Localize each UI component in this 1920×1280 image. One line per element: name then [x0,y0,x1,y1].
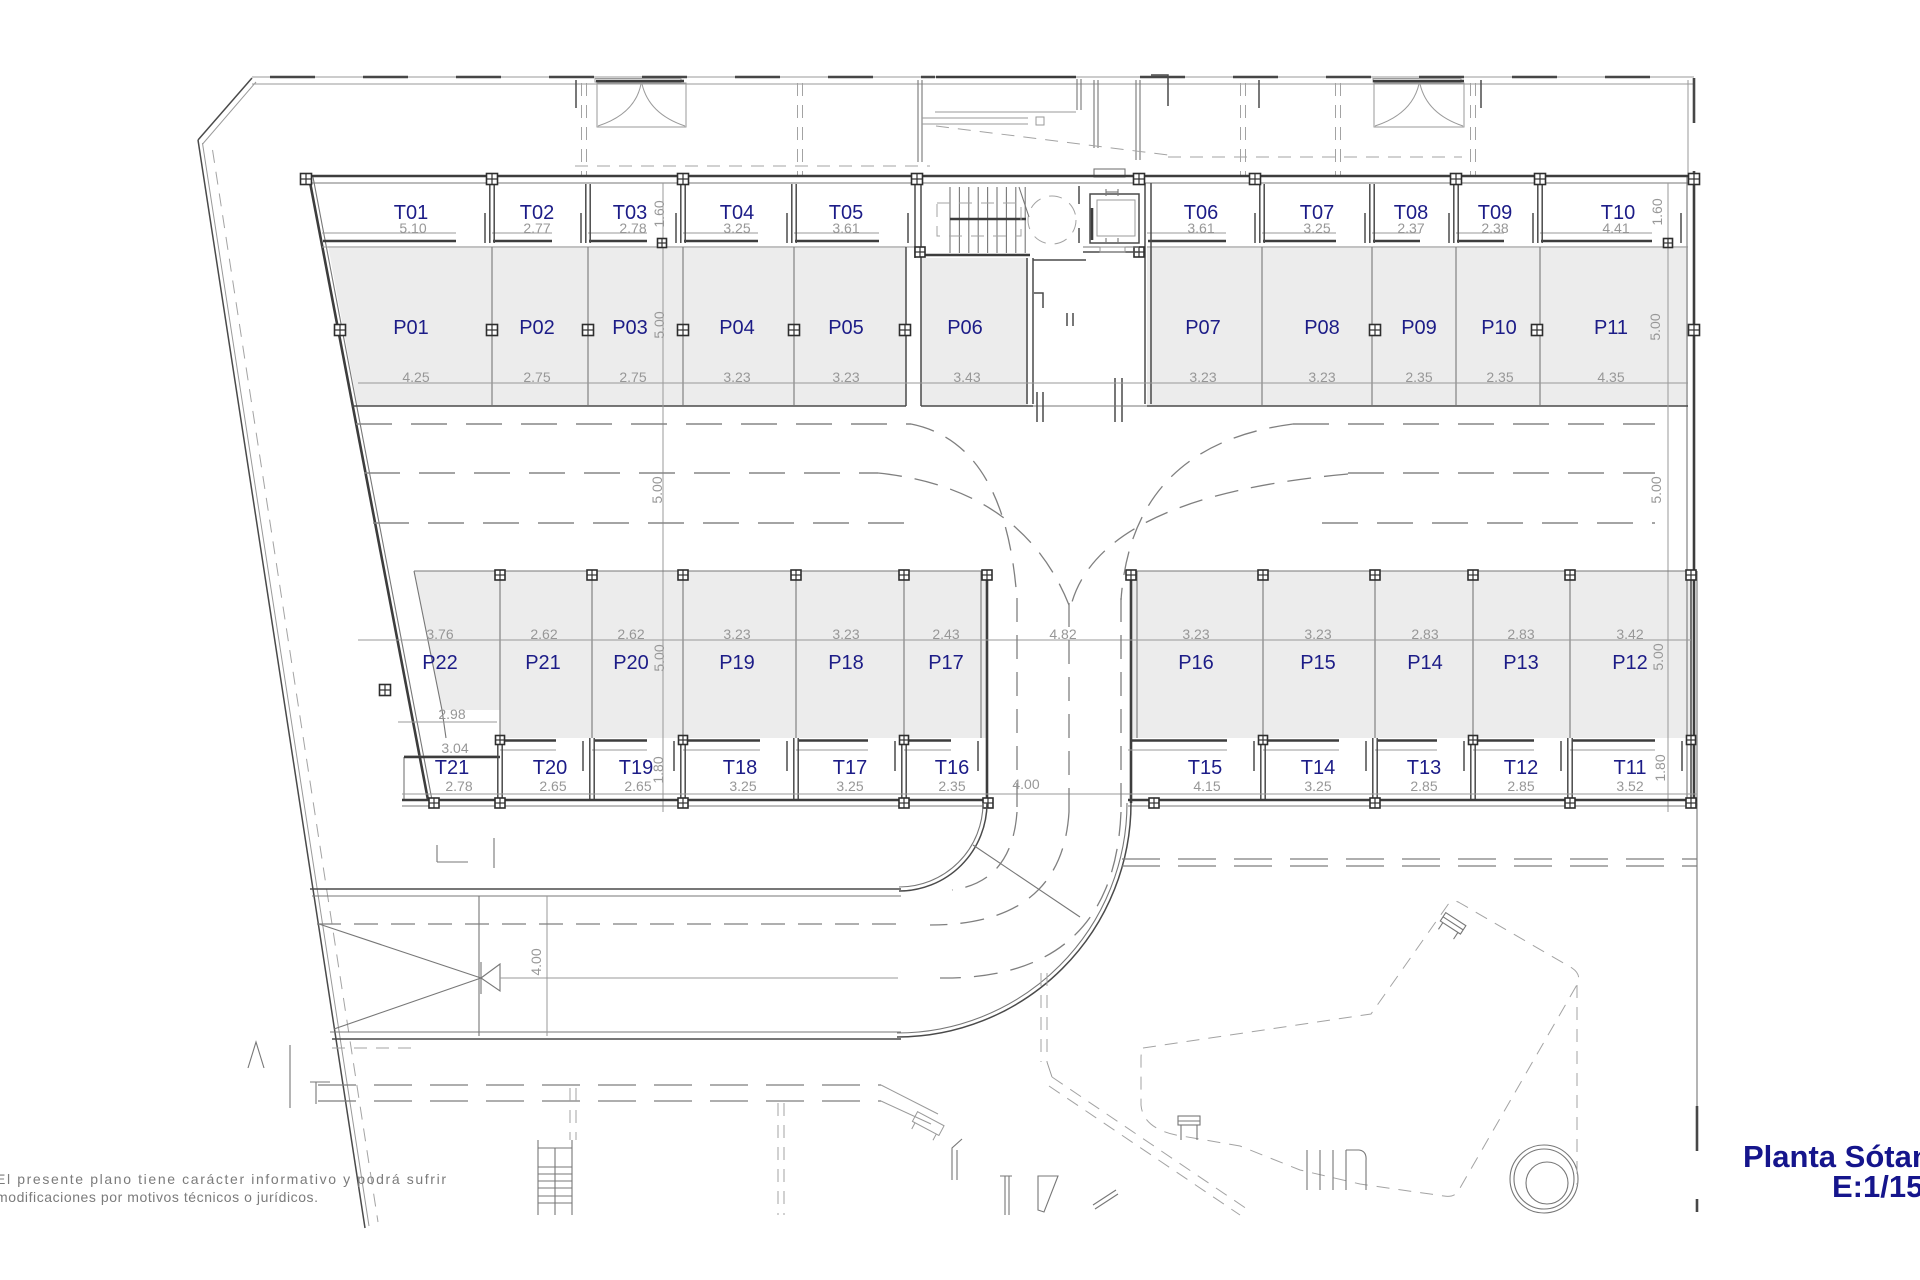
svg-text:3.23: 3.23 [1308,369,1335,385]
svg-text:1.80: 1.80 [650,756,666,783]
svg-text:P12: P12 [1612,652,1648,674]
svg-text:2.43: 2.43 [932,626,959,642]
svg-text:T19: T19 [619,757,653,779]
svg-text:4.15: 4.15 [1193,778,1220,794]
svg-text:2.37: 2.37 [1397,220,1424,236]
svg-text:P13: P13 [1503,652,1539,674]
svg-text:4.41: 4.41 [1602,220,1629,236]
svg-text:P10: P10 [1481,317,1517,339]
svg-text:2.78: 2.78 [619,220,646,236]
svg-text:3.43: 3.43 [953,369,980,385]
svg-text:3.25: 3.25 [729,778,756,794]
svg-text:2.35: 2.35 [1405,369,1432,385]
svg-text:3.61: 3.61 [832,220,859,236]
svg-text:2.83: 2.83 [1507,626,1534,642]
svg-text:P08: P08 [1304,317,1340,339]
svg-text:3.23: 3.23 [832,369,859,385]
svg-text:3.23: 3.23 [1304,626,1331,642]
svg-text:3.23: 3.23 [723,369,750,385]
svg-text:2.85: 2.85 [1410,778,1437,794]
svg-text:2.75: 2.75 [523,369,550,385]
svg-text:1.80: 1.80 [1652,754,1668,781]
svg-text:3.23: 3.23 [1189,369,1216,385]
svg-text:P06: P06 [947,317,983,339]
svg-text:3.61: 3.61 [1187,220,1214,236]
svg-text:modificaciones por motivos téc: modificaciones por motivos técnicos o ju… [0,1189,318,1205]
svg-text:P15: P15 [1300,652,1336,674]
svg-text:5.10: 5.10 [399,220,426,236]
svg-text:P05: P05 [828,317,864,339]
svg-text:1.60: 1.60 [651,200,667,227]
svg-text:P22: P22 [422,652,458,674]
svg-text:5.00: 5.00 [1648,476,1664,503]
svg-text:3.23: 3.23 [723,626,750,642]
svg-text:5.00: 5.00 [649,476,665,503]
svg-text:2.77: 2.77 [523,220,550,236]
svg-text:2.62: 2.62 [617,626,644,642]
svg-text:3.25: 3.25 [1303,220,1330,236]
svg-text:5.00: 5.00 [1650,643,1666,670]
svg-text:4.00: 4.00 [1012,776,1039,792]
svg-text:E:1/150: E:1/150 [1832,1169,1920,1204]
svg-text:P02: P02 [519,317,555,339]
svg-text:5.00: 5.00 [651,644,667,671]
svg-text:2.38: 2.38 [1481,220,1508,236]
svg-text:T16: T16 [935,757,969,779]
svg-text:3.76: 3.76 [426,626,453,642]
svg-text:5.00: 5.00 [1647,313,1663,340]
svg-text:P09: P09 [1401,317,1437,339]
svg-text:T21: T21 [435,757,469,779]
svg-text:4.35: 4.35 [1597,369,1624,385]
svg-text:2.78: 2.78 [445,778,472,794]
svg-text:T18: T18 [723,757,757,779]
svg-text:P04: P04 [719,317,755,339]
svg-text:P14: P14 [1407,652,1443,674]
svg-text:1.60: 1.60 [1649,198,1665,225]
svg-text:3.25: 3.25 [1304,778,1331,794]
svg-text:2.65: 2.65 [624,778,651,794]
svg-text:3.04: 3.04 [441,740,468,756]
svg-text:P18: P18 [828,652,864,674]
svg-text:2.75: 2.75 [619,369,646,385]
svg-text:P17: P17 [928,652,964,674]
svg-text:2.65: 2.65 [539,778,566,794]
svg-text:4.25: 4.25 [402,369,429,385]
svg-text:P11: P11 [1594,317,1628,339]
svg-text:P16: P16 [1178,652,1214,674]
svg-text:3.25: 3.25 [723,220,750,236]
svg-text:3.25: 3.25 [836,778,863,794]
svg-text:4.00: 4.00 [528,948,544,975]
svg-text:4.82: 4.82 [1049,626,1076,642]
svg-text:T13: T13 [1407,757,1441,779]
svg-text:5.00: 5.00 [651,311,667,338]
svg-text:T14: T14 [1301,757,1335,779]
svg-text:P07: P07 [1185,317,1221,339]
svg-text:P19: P19 [719,652,755,674]
svg-text:T15: T15 [1188,757,1222,779]
svg-text:T11: T11 [1614,757,1647,779]
svg-text:2.83: 2.83 [1411,626,1438,642]
svg-text:P01: P01 [393,317,429,339]
svg-text:2.62: 2.62 [530,626,557,642]
svg-text:T20: T20 [533,757,567,779]
svg-text:3.42: 3.42 [1616,626,1643,642]
svg-text:2.85: 2.85 [1507,778,1534,794]
svg-text:2.35: 2.35 [1486,369,1513,385]
svg-text:T12: T12 [1504,757,1538,779]
svg-text:3.23: 3.23 [832,626,859,642]
svg-text:P21: P21 [525,652,561,674]
svg-text:P20: P20 [613,652,649,674]
svg-text:2.35: 2.35 [938,778,965,794]
svg-text:2.98: 2.98 [438,706,465,722]
svg-text:T17: T17 [833,757,867,779]
svg-text:P03: P03 [612,317,648,339]
svg-text:3.52: 3.52 [1616,778,1643,794]
svg-text:3.23: 3.23 [1182,626,1209,642]
